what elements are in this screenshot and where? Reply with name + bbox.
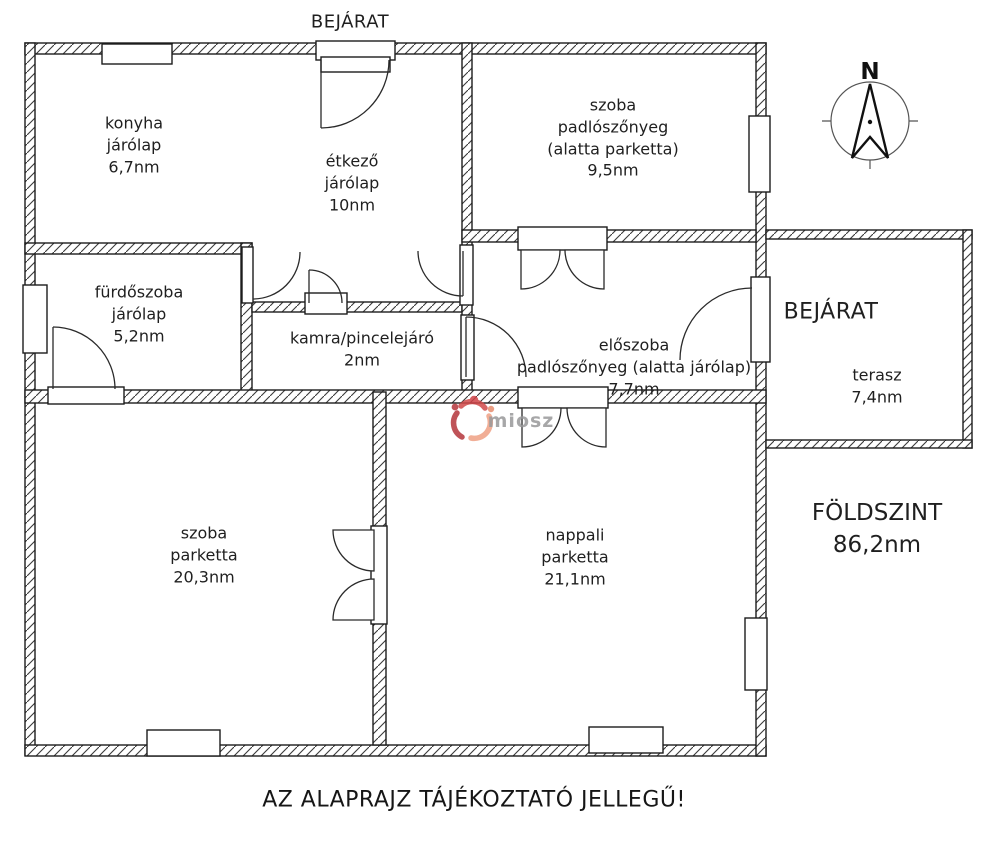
room-label-furdoszoba: fürdőszoba járólap 5,2nm [95,281,184,346]
room-name: nappali [541,524,608,546]
wall-upper-room-bottom [462,230,756,242]
watermark-figure-head-top [470,396,478,404]
room-area: 20,3nm [170,566,237,588]
room-floor: parketta [170,544,237,566]
room-floor: padlószőnyeg [547,116,678,138]
room-label-terasz: terasz 7,4nm [851,364,902,408]
wall-terrace-right [963,230,972,448]
room-double-door-leaf-top [333,530,374,571]
room-name: terasz [851,364,902,386]
watermark-swirl-left [454,413,462,437]
room-label-nappali: nappali parketta 21,1nm [541,524,608,589]
floor-total-area: 86,2nm [812,529,942,561]
room-label-szoba-felso: szoba padlószőnyeg (alatta parketta) 9,5… [547,95,678,182]
room-area: 5,2nm [95,325,184,347]
compass-north-label: N [860,59,879,85]
upper-room-door-leaf-left [521,250,560,289]
hall-door-opening [461,315,474,380]
wall-terrace-bottom [766,440,972,448]
entrance-top-label: BEJÁRAT [311,12,389,33]
living-side-window [745,618,767,690]
walls [25,43,972,756]
room-label-kamra: kamra/pincelejáró 2nm [290,327,434,371]
room-floor: járólap [325,172,380,194]
wall-terrace-top [766,230,972,239]
room-area: 9,5nm [547,160,678,182]
room-area: 21,1nm [541,568,608,590]
living-bottom-window [589,727,663,753]
wall-pantry-top [252,302,462,312]
wall-kitchen-bath [25,243,252,254]
upper-room-door-threshold [518,227,607,250]
room-name: előszoba [517,334,751,356]
entry-door-frame [321,57,390,72]
bathroom-door-threshold [48,387,124,404]
room-area: 7,4nm [851,386,902,408]
room-floor-note: (alatta parketta) [547,138,678,160]
room-double-door-leaf-bottom [333,579,374,620]
room-name: szoba [170,522,237,544]
room-area: 10nm [325,194,380,216]
room-floor: padlószőnyeg (alatta járólap) [517,356,751,378]
floor-title: FÖLDSZINT [812,497,942,529]
upper-room-door-leaf-right [565,250,604,289]
room-name: kamra/pincelejáró [290,327,434,349]
room-label-eloszoba: előszoba padlószőnyeg (alatta járólap) 7… [517,334,751,399]
room-name: fürdőszoba [95,281,184,303]
room-area: 6,7nm [105,156,163,178]
room-name: étkező [325,150,380,172]
corridor-door-leaf [242,247,253,303]
compass-center-dot [868,120,872,124]
living-door-leaf-right [567,408,606,447]
room-label-etkezo: étkező járólap 10nm [325,150,380,215]
room-area: 2nm [290,349,434,371]
watermark-text: miosz [488,410,555,432]
watermark-figure-head-left [452,404,459,411]
entrance-terrace-label: BEJÁRAT [784,300,879,325]
room-bottom-window [147,730,220,756]
corridor-door-arc [253,252,300,299]
room-floor: járólap [105,134,163,156]
room-area: 7,7nm [517,378,751,400]
floor-summary: FÖLDSZINT 86,2nm [812,497,942,561]
room-label-konyha: konyha járólap 6,7nm [105,112,163,177]
room-floor: parketta [541,546,608,568]
room-name: szoba [547,95,678,117]
floor-plan-page: BEJÁRAT N konyha járólap 6,7nm étkező já… [0,0,1000,844]
disclaimer-text: AZ ALAPRAJZ TÁJÉKOZTATÓ JELLEGŰ! [262,788,686,813]
main-entrance-door-leaf [751,277,770,362]
compass-icon [822,82,918,169]
kitchen-window [102,44,172,64]
room-name: konyha [105,112,163,134]
room-floor: járólap [95,303,184,325]
upper-room-window [749,116,770,192]
dining-door-arc [418,251,463,296]
room-label-szoba-also: szoba parketta 20,3nm [170,522,237,587]
bathroom-window [23,285,47,353]
